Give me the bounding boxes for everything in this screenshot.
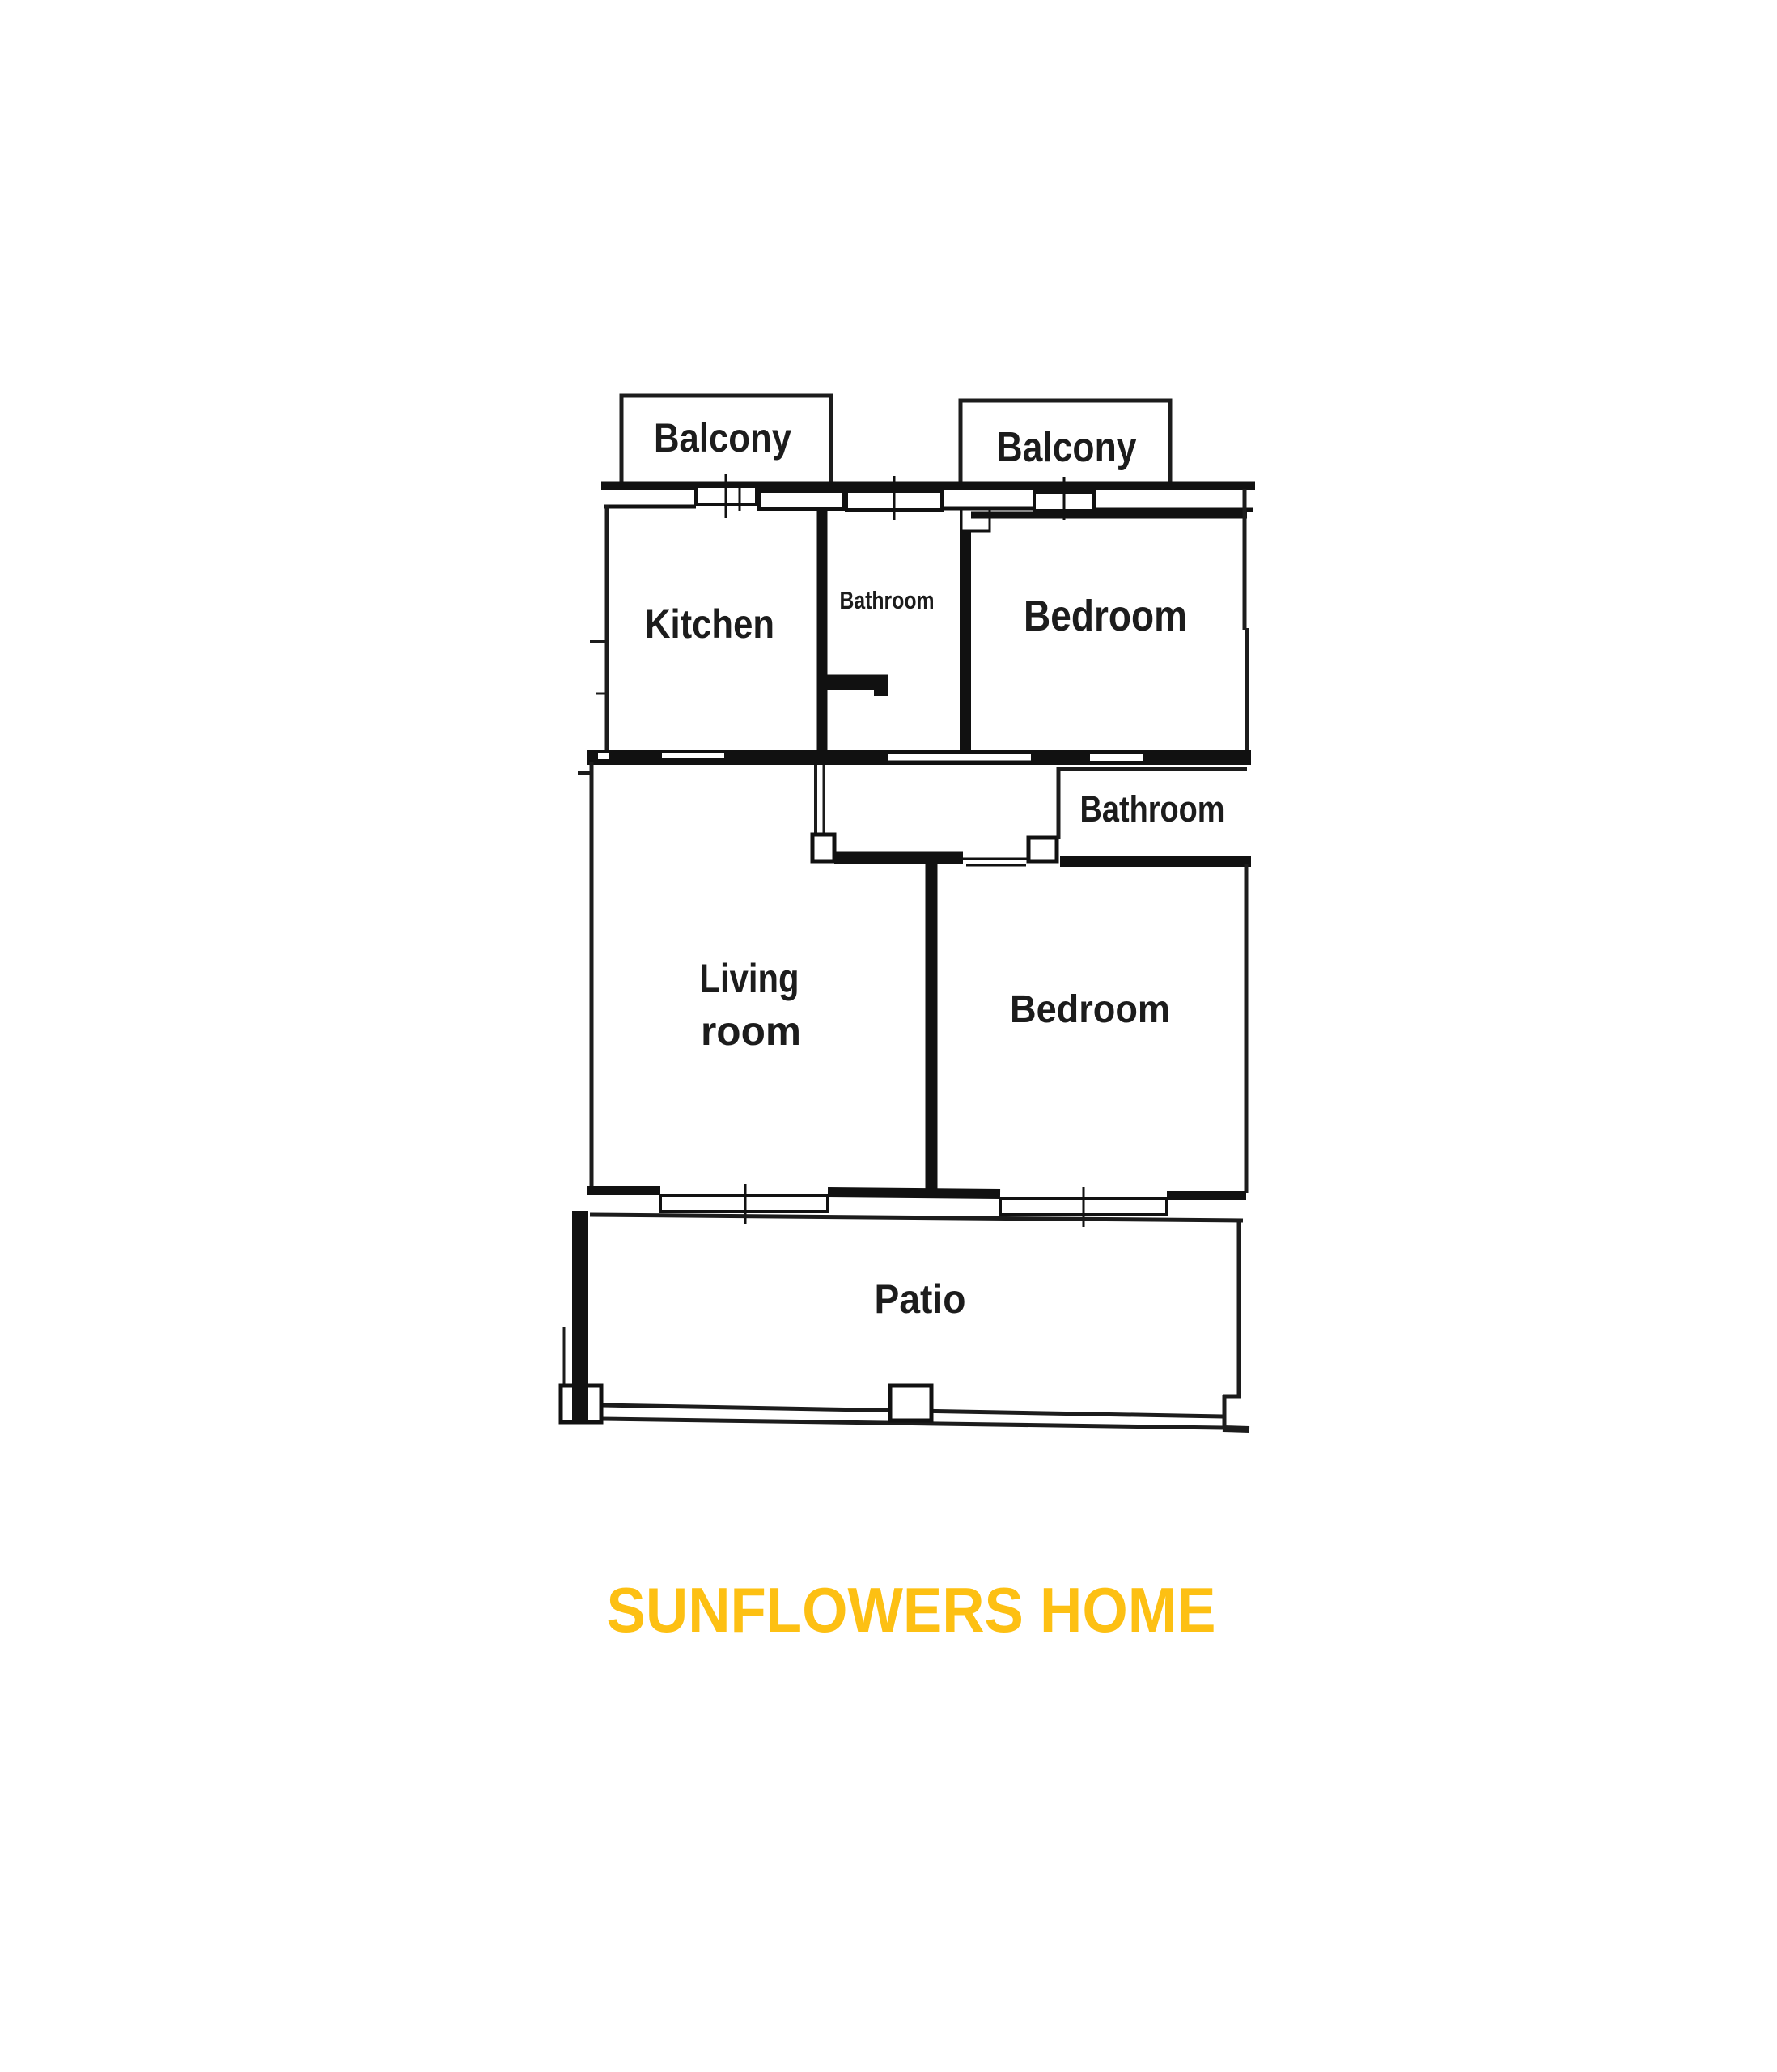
svg-text:Bathroom: Bathroom [1080,788,1225,830]
svg-text:Living: Living [700,956,799,1001]
svg-text:SUNFLOWERS HOME: SUNFLOWERS HOME [607,1574,1216,1645]
svg-text:Balcony: Balcony [654,415,791,461]
svg-text:room: room [701,1008,801,1054]
svg-text:Bedroom: Bedroom [1010,988,1170,1031]
svg-text:Bathroom: Bathroom [840,586,935,614]
svg-text:Patio: Patio [875,1276,966,1322]
svg-text:Kitchen: Kitchen [645,601,774,647]
svg-text:Bedroom: Bedroom [1024,592,1187,640]
svg-text:Balcony: Balcony [997,424,1137,471]
